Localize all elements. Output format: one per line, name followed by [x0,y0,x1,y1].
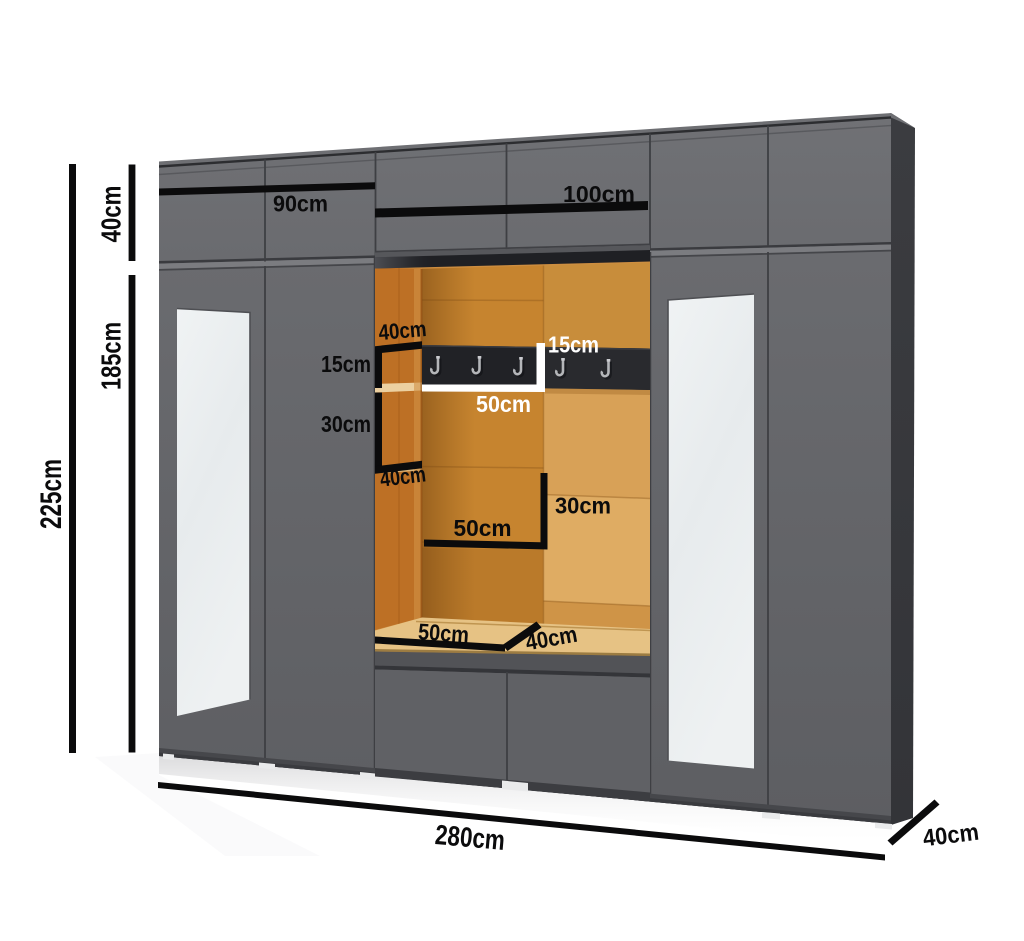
svg-text:40cm: 40cm [95,186,126,243]
svg-text:185cm: 185cm [95,322,126,390]
svg-text:50cm: 50cm [417,618,470,647]
svg-text:30cm: 30cm [321,411,371,437]
svg-text:225cm: 225cm [35,459,68,529]
svg-text:90cm: 90cm [273,191,328,217]
svg-text:100cm: 100cm [563,181,635,207]
svg-text:30cm: 30cm [555,493,611,519]
svg-text:15cm: 15cm [321,351,371,377]
svg-text:50cm: 50cm [454,515,512,541]
svg-text:40cm: 40cm [377,316,427,345]
svg-text:280cm: 280cm [434,819,506,856]
svg-text:50cm: 50cm [476,391,531,417]
svg-text:15cm: 15cm [548,332,599,358]
